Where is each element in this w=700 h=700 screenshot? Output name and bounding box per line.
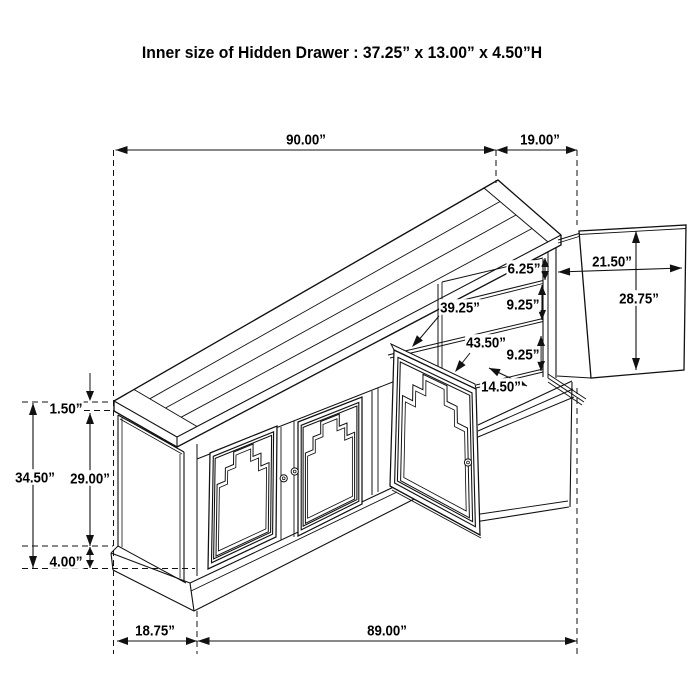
svg-text:29.00”: 29.00” [70,470,110,487]
svg-text:18.75”: 18.75” [135,622,175,639]
svg-text:4.00”: 4.00” [49,553,82,570]
svg-text:Inner size of Hidden Drawer :: Inner size of Hidden Drawer : 37.25” x 1… [142,44,542,62]
svg-text:43.50”: 43.50” [466,334,506,351]
svg-text:14.50”: 14.50” [481,378,521,395]
svg-text:21.50”: 21.50” [592,253,632,270]
svg-text:34.50”: 34.50” [15,469,55,486]
svg-text:1.50”: 1.50” [49,400,82,417]
svg-text:89.00”: 89.00” [367,622,407,639]
svg-text:90.00”: 90.00” [286,131,326,148]
svg-text:6.25”: 6.25” [507,260,540,277]
svg-text:19.00”: 19.00” [520,131,560,148]
svg-text:39.25”: 39.25” [440,299,480,316]
svg-text:9.25”: 9.25” [506,346,539,363]
svg-text:28.75”: 28.75” [619,290,659,307]
svg-text:9.25”: 9.25” [506,296,539,313]
